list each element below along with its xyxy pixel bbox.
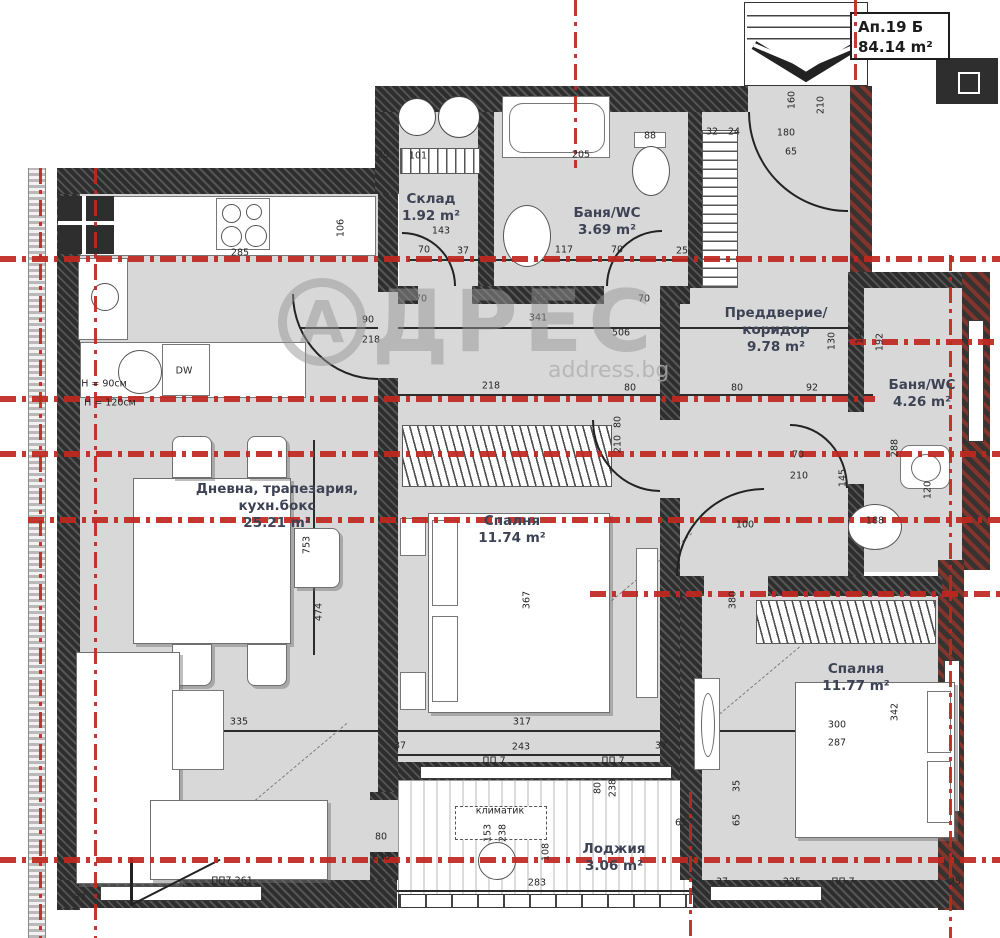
dimension-label: 70 <box>792 450 804 461</box>
room-area: 1.92 m² <box>402 208 460 225</box>
shaft-block <box>936 58 998 104</box>
dimension-label: 70 <box>638 294 650 305</box>
dimension-label: 80 <box>593 782 604 794</box>
dimension-label: 25 <box>377 150 389 161</box>
window-bedroom2-south <box>710 886 822 901</box>
dining-chair <box>247 644 287 686</box>
dimension-label: 25 <box>676 246 688 257</box>
room-name: Баня/WC <box>573 205 640 221</box>
dimension-label: 70 <box>611 245 623 256</box>
corridor-wardrobe <box>702 130 738 288</box>
room-label-bedroom1: Спалня 11.74 m² <box>478 496 545 564</box>
dimension-label: 88 <box>644 131 656 142</box>
dimension-label: 80 <box>731 383 743 394</box>
dimension-label: H = 90см <box>81 379 127 390</box>
entry-threshold-fill <box>748 86 850 112</box>
bathtub <box>502 96 610 158</box>
room-area: 3.69 m² <box>573 222 640 239</box>
dimension-label: 80 <box>624 383 636 394</box>
dimension-label: 753 <box>302 536 313 554</box>
room-area: 9.78 m² <box>725 339 828 356</box>
dimension-label: 180 <box>777 128 795 139</box>
basin-icon <box>911 454 941 482</box>
door-opening-hall-living <box>378 292 398 378</box>
room-label-bath2: Баня/WC 4.26 m² <box>888 360 955 428</box>
axis-line-vertical <box>39 168 42 938</box>
window-living-south <box>100 886 262 901</box>
wall-top-living <box>57 168 399 194</box>
wall-living-bedroom1 <box>378 194 398 792</box>
dimension-label: 188 <box>866 516 884 527</box>
room-name: Склад <box>407 191 456 207</box>
unit-area: 84.14 m² <box>858 38 933 56</box>
nightstand <box>400 518 426 556</box>
floor-plan: Ап.19 Б 84.14 m² <box>0 0 1000 938</box>
dimension-label: 100 <box>736 520 754 531</box>
dimension-label: 342 <box>890 703 901 721</box>
dimension-label: 24 <box>728 127 740 138</box>
dresser-mirror-icon <box>701 693 715 757</box>
dimension-label: 210 <box>613 435 624 453</box>
dimension-label: 37 <box>655 741 667 752</box>
kitchen-corner-unit <box>58 196 114 254</box>
dimension-label: 238 <box>372 852 390 863</box>
stair-direction-arrow-icon <box>746 41 866 85</box>
room-name: Дневна, трапезария, кухн.бокс <box>196 481 358 514</box>
dimension-label: ПП 7 <box>482 756 505 767</box>
stove <box>216 198 270 250</box>
room-name: Преддверие/ коридор <box>725 305 828 338</box>
storage-washer <box>398 98 436 136</box>
room-label-bedroom2: Спалня 11.77 m² <box>822 644 889 712</box>
dimension-label: DW <box>176 366 193 377</box>
storage-dryer <box>438 96 480 138</box>
axis-line-vertical <box>574 0 577 168</box>
dimension-label: 80 <box>375 832 387 843</box>
room-area: 25.21 m² <box>196 515 358 532</box>
room-area: 11.77 m² <box>822 678 889 695</box>
wardrobe-bedroom2 <box>756 600 936 644</box>
dimension-label: 143 <box>432 226 450 237</box>
dimension-label: 335 <box>230 717 248 728</box>
room-label-bath1: Баня/WC 3.69 m² <box>573 188 640 256</box>
dimension-label: 35 <box>732 780 743 792</box>
dimension-label: климатик <box>476 806 524 817</box>
dimension-label: 153 <box>483 824 494 842</box>
dimension-label: 25 <box>949 877 961 888</box>
loggia-railing <box>398 894 694 908</box>
room-name: Лоджия <box>583 841 646 857</box>
door-opening-bathroom2 <box>848 412 864 484</box>
dimension-label: 70 <box>415 294 427 305</box>
axis-line-horizontal <box>590 591 1000 597</box>
burner-icon <box>221 226 242 247</box>
dimension-label: 506 <box>612 328 630 339</box>
balcony-door-leaf <box>130 858 133 906</box>
burner-icon <box>245 225 267 247</box>
dimension-label: 341 <box>529 313 547 324</box>
dimension-label: 37 <box>394 741 406 752</box>
dimension-label: 287 <box>828 738 846 749</box>
pillow <box>432 616 458 702</box>
watermark-site: address.bg <box>548 358 669 383</box>
dimension-label: 92 <box>806 383 818 394</box>
dimension-label: 283 <box>528 878 546 889</box>
dimension-label: 65 <box>675 818 687 829</box>
room-label-corridor: Преддверие/ коридор 9.78 m² <box>725 288 828 372</box>
dimension-label: 218 <box>482 381 500 392</box>
dimension-label: 130 <box>827 332 838 350</box>
dimension-label: 192 <box>875 333 886 351</box>
unit-info-box: Ап.19 Б 84.14 m² <box>850 12 950 60</box>
door-opening-loggia-living <box>370 800 398 852</box>
dimension-label: 65 <box>732 814 743 826</box>
dimension-label: 160 <box>787 91 798 109</box>
dimension-label: 165 <box>530 294 548 305</box>
dimension-label: 367 <box>522 591 533 609</box>
axis-line-horizontal <box>850 339 1000 345</box>
dimension-label: 101 <box>409 151 427 162</box>
dimension-label: 317 <box>513 717 531 728</box>
dimension-label: 238 <box>498 824 509 842</box>
dimension-label: 210 <box>816 96 827 114</box>
coffee-table <box>172 690 224 770</box>
room-area: 11.74 m² <box>478 530 545 547</box>
room-name: Спалня <box>484 513 540 529</box>
axis-line-vertical <box>689 792 692 938</box>
dimension-label: 70 <box>418 245 430 256</box>
glazing-bedroom1-loggia <box>420 766 672 779</box>
dimension-label: 210 <box>790 471 808 482</box>
dresser-bedroom2 <box>694 678 720 770</box>
dimension-label: 37 <box>74 893 86 904</box>
axis-line-horizontal <box>0 256 1000 262</box>
nightstand <box>400 672 426 710</box>
shaft-icon <box>958 72 980 94</box>
room-area: 4.26 m² <box>888 394 955 411</box>
pillow <box>927 761 951 823</box>
sofa-chaise <box>150 800 328 880</box>
stair-treads <box>747 5 865 41</box>
dimension-label: 106 <box>336 219 347 237</box>
dimension-label: 205 <box>572 150 590 161</box>
tv-unit-bedroom1 <box>636 548 658 698</box>
dimension-label: 65 <box>785 147 797 158</box>
bathtub-inner <box>509 103 605 153</box>
dimension-label: 218 <box>362 335 380 346</box>
dimension-label: 145 <box>838 469 849 487</box>
dimension-label: 225 <box>783 877 801 888</box>
axis-line-horizontal <box>0 857 1000 863</box>
dimension-label: ПП7 261 <box>211 876 252 887</box>
dimension-label: 288 <box>890 439 901 457</box>
axis-line-vertical <box>949 255 952 938</box>
dimension-label: 238 <box>608 779 619 797</box>
dimension-label: H = 120см <box>84 398 136 409</box>
dimension-label: 90 <box>362 315 374 326</box>
kitchen-tall-cabinet <box>78 258 128 340</box>
dimension-label: 80 <box>613 416 624 428</box>
dimension-label: ПП 7 <box>601 756 624 767</box>
dimension-label: 474 <box>314 603 325 621</box>
unit-name: Ап.19 Б <box>858 18 923 36</box>
toilet-bowl <box>848 504 902 550</box>
room-name: Баня/WC <box>888 377 955 393</box>
dimension-label: 37 <box>716 877 728 888</box>
dimension-label: 108 <box>541 843 552 861</box>
dimension-label: 243 <box>512 742 530 753</box>
door-opening-bath1 <box>604 286 660 304</box>
room-area: 3.06 m² <box>583 858 646 875</box>
door-opening-bedroom1 <box>660 420 680 498</box>
toilet-bath1 <box>630 132 670 196</box>
room-label-loggia: Лоджия 3.06 m² <box>583 824 646 892</box>
burner-icon <box>246 204 262 220</box>
pillow <box>927 691 951 753</box>
axis-line-vertical <box>94 168 97 938</box>
burner-icon <box>222 204 241 223</box>
dimension-label: 32 <box>706 127 718 138</box>
room-name: Спалня <box>828 661 884 677</box>
dimension-label: 380 <box>728 591 739 609</box>
dimension-label: 120 <box>923 481 934 499</box>
room-label-living: Дневна, трапезария, кухн.бокс 25.21 m² <box>196 464 358 548</box>
dimension-label: 142 <box>855 326 866 344</box>
axis-line-vertical <box>854 0 857 86</box>
dimension-label: 300 <box>828 720 846 731</box>
dimension-label: ПП 7 <box>831 877 854 888</box>
dimension-label: 117 <box>555 245 573 256</box>
axis-line-horizontal <box>0 451 1000 457</box>
dimension-label: 285 <box>231 248 249 259</box>
exterior-insulation-strip <box>28 168 46 938</box>
pillow <box>432 520 458 606</box>
dimension-label: 37 <box>457 246 469 257</box>
